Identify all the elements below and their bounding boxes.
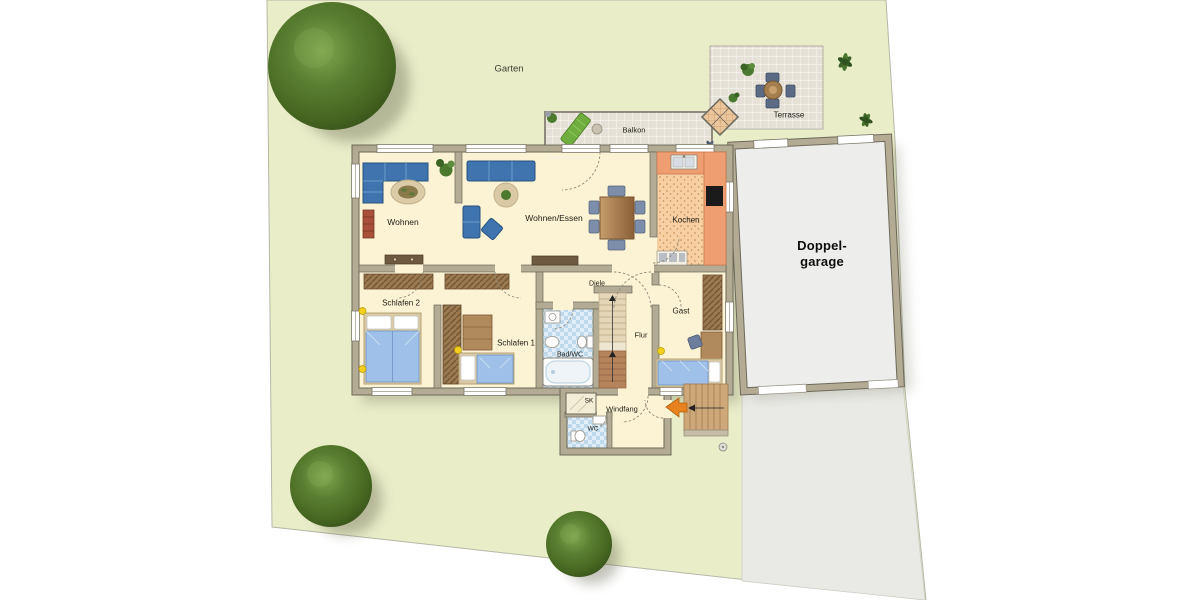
- desk: [701, 332, 722, 360]
- toilet: [578, 336, 594, 348]
- balcony-side-table: [592, 124, 602, 134]
- wc-toilet: [571, 431, 585, 442]
- stove: [706, 186, 723, 206]
- driveway: [742, 386, 925, 600]
- sk-closet: [566, 393, 596, 414]
- entrance-stairs: [684, 384, 728, 436]
- bathtub: [543, 358, 593, 386]
- guest-bed: [656, 359, 722, 387]
- staircase: [599, 293, 626, 388]
- sofa: [467, 161, 535, 181]
- garage-window: [838, 134, 874, 144]
- floor-plan-page: Garten Balkon Terrasse Wohnen Wohnen/Ess…: [0, 0, 1200, 600]
- driveway-drain: [719, 443, 727, 451]
- garage-floor: [735, 141, 897, 387]
- garage-window: [754, 139, 788, 149]
- wardrobe: [703, 275, 722, 330]
- washer: [545, 311, 560, 323]
- balcony: [545, 111, 712, 148]
- bath-sink: [545, 337, 559, 348]
- wardrobe: [364, 274, 433, 289]
- wardrobe-tall: [443, 305, 461, 384]
- counter-right: [704, 152, 726, 265]
- sideboard: [385, 255, 423, 264]
- garage: [728, 134, 905, 396]
- floor-plan-svg: [0, 0, 1200, 600]
- desk: [463, 315, 492, 350]
- sideboard: [532, 256, 578, 265]
- double-bed: [364, 313, 421, 384]
- dining-table: [600, 197, 634, 239]
- garage-door: [868, 380, 898, 390]
- single-bed: [459, 353, 514, 384]
